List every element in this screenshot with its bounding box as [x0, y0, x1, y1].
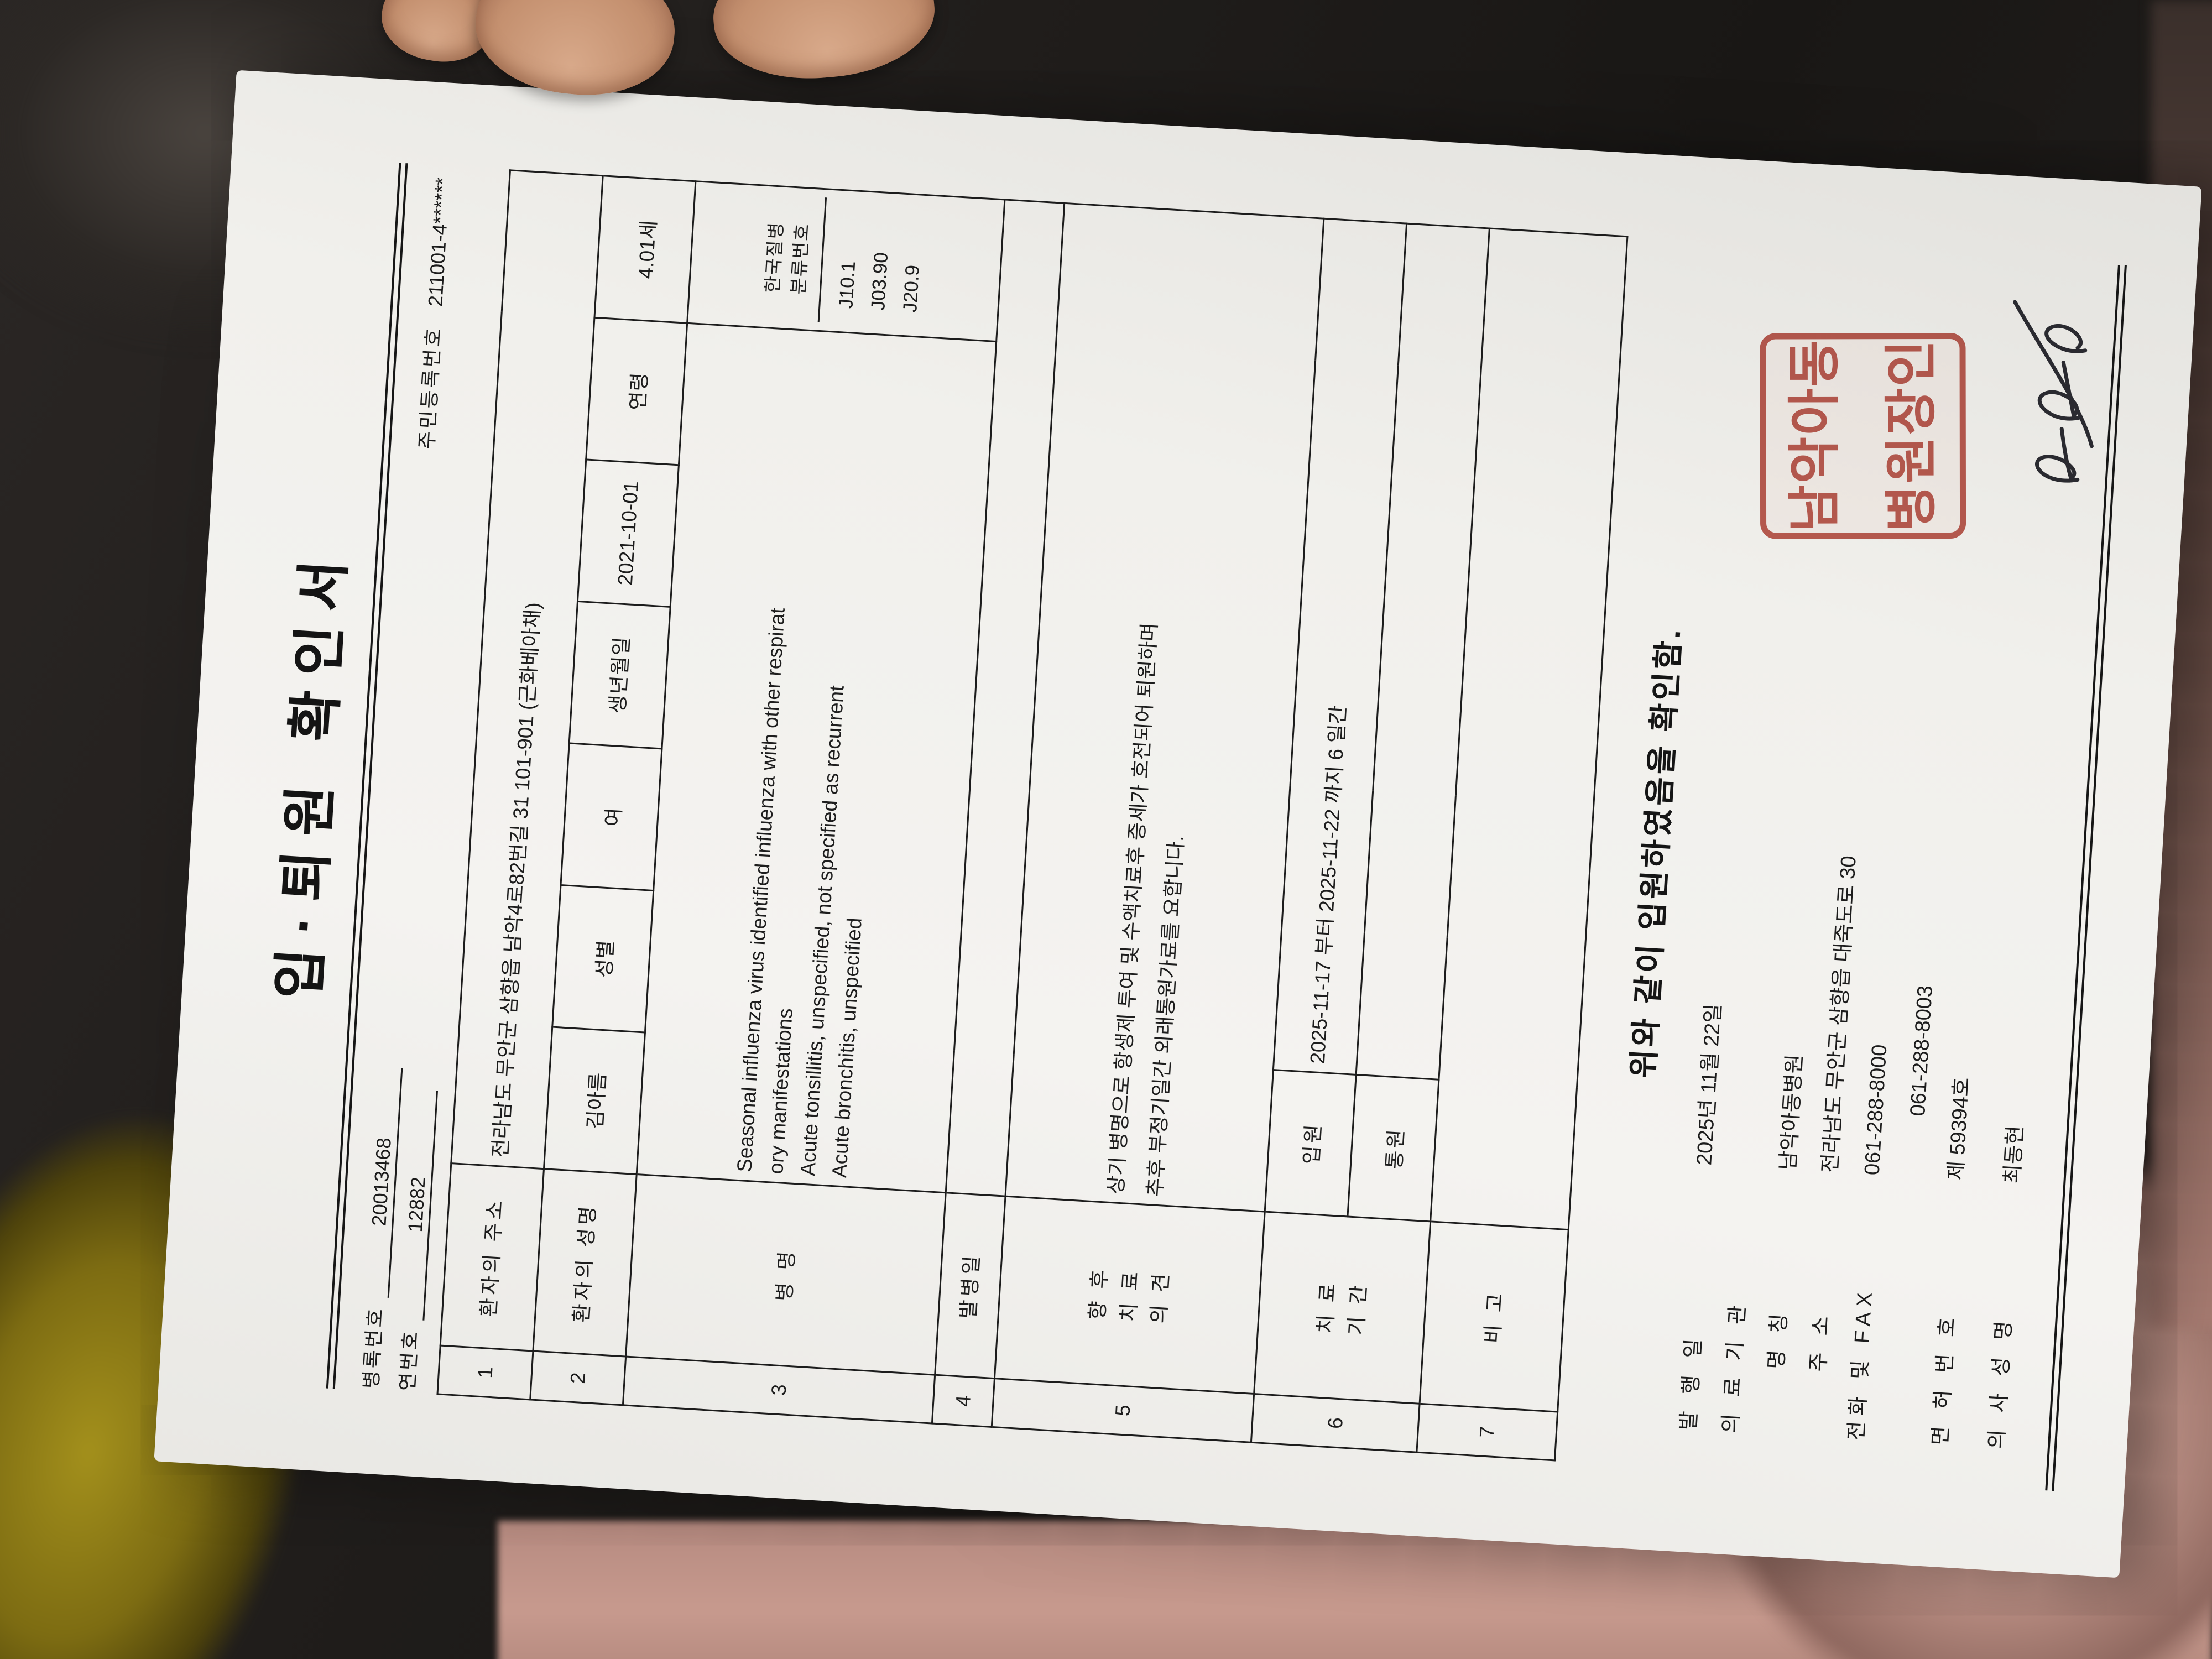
row1-number: 1 — [437, 1345, 533, 1400]
age-header: 연령 — [586, 317, 687, 465]
hospital-seal-stamp: 남 악 아 동 병 원 장 인 — [1760, 333, 1966, 539]
certificate-paper: 입·퇴원 확인서 병록번호 20013468 주민등록번호 211001-4**… — [154, 70, 2201, 1578]
inpatient-label: 입원 — [1265, 1070, 1356, 1217]
row4-number: 4 — [932, 1375, 994, 1427]
doctor-name-label: 의 사 성 명 — [1976, 1210, 2032, 1450]
age-value: 4.01세 — [594, 176, 696, 324]
kcd-code-list: J10.1 J03.90 J20.9 — [820, 197, 942, 329]
kcd-code-3: J20.9 — [894, 217, 932, 313]
seal-char-6: 원 — [1889, 436, 1933, 483]
seal-char-2: 악 — [1792, 437, 1837, 484]
row6-label: 치 료 기 간 — [1254, 1212, 1431, 1404]
seal-char-8: 인 — [1889, 340, 1933, 387]
kcd-code-cell: 한국질병 분류번호 J10.1 J03.90 J20.9 — [687, 181, 1005, 342]
issue-info-block: 발 행 일 2025년 11월 22일 의 료 기 관 명 칭 남악아동병원 주… — [1665, 242, 2088, 1489]
row3-label: 병 명 — [626, 1175, 946, 1375]
certificate-table: 1 환자의 주소 전라남도 무안군 삼향읍 남악4로82번길 31 101-90… — [436, 169, 1628, 1461]
holding-finger-right — [708, 0, 940, 87]
seal-char-7: 장 — [1889, 388, 1933, 435]
doctor-signature — [1994, 291, 2116, 497]
chart-number-value: 20013468 — [363, 1066, 403, 1297]
tel-value: 061-288-8000 — [1861, 1044, 1892, 1176]
sex-header: 성별 — [552, 885, 654, 1033]
row1-label: 환자의 주소 — [440, 1164, 544, 1351]
seal-char-5: 병 — [1890, 485, 1934, 532]
doctor-name-value: 최동현 — [2001, 1125, 2027, 1184]
seal-char-4: 동 — [1792, 340, 1837, 387]
certificate-page: 입·퇴원 확인서 병록번호 20013468 주민등록번호 211001-4**… — [154, 70, 2201, 1578]
license-value: 제 59394호 — [1944, 1077, 1974, 1181]
birth-value: 2021-10-01 — [577, 460, 679, 607]
row6-number: 6 — [1251, 1394, 1420, 1452]
row7-label: 비 고 — [1420, 1222, 1568, 1412]
row2-label: 환자의 성명 — [533, 1169, 637, 1357]
outpatient-label: 통원 — [1348, 1074, 1439, 1221]
patient-name-value: 김아름 — [544, 1027, 645, 1175]
rrn-value: 211001-4****** — [423, 167, 456, 317]
kcd-code-1: J10.1 — [830, 213, 868, 309]
document-title: 입·퇴원 확인서 — [231, 157, 383, 1387]
birth-header: 생년월일 — [569, 601, 670, 749]
seal-char-1: 남 — [1793, 485, 1837, 532]
chart-number-label: 병록번호 — [355, 1306, 389, 1389]
org-name-value: 남악아동병원 — [1777, 1053, 1807, 1171]
serial-number-label: 연번호 — [392, 1328, 424, 1391]
row2-number: 2 — [530, 1351, 626, 1405]
serial-number-value: 12882 — [398, 1089, 438, 1320]
diagnosis-cell: Seasonal influenza virus identified infl… — [637, 323, 996, 1192]
kcd-code-2: J03.90 — [862, 216, 900, 311]
issue-date-value: 2025년 11월 22일 — [1693, 1003, 1725, 1166]
kcd-header: 한국질병 분류번호 — [749, 194, 827, 322]
rrn-label: 주민등록번호 — [411, 325, 447, 450]
row4-label: 발병일 — [935, 1193, 1005, 1379]
fax-value: 061-288-8003 — [1906, 985, 1937, 1117]
row5-label: 향 후 치 료 의 견 — [994, 1196, 1265, 1394]
seal-char-3: 아 — [1792, 388, 1837, 435]
photo-scene: 입·퇴원 확인서 병록번호 20013468 주민등록번호 211001-4**… — [0, 0, 2212, 1659]
row7-number: 7 — [1417, 1404, 1558, 1460]
sex-value: 여 — [561, 743, 662, 891]
